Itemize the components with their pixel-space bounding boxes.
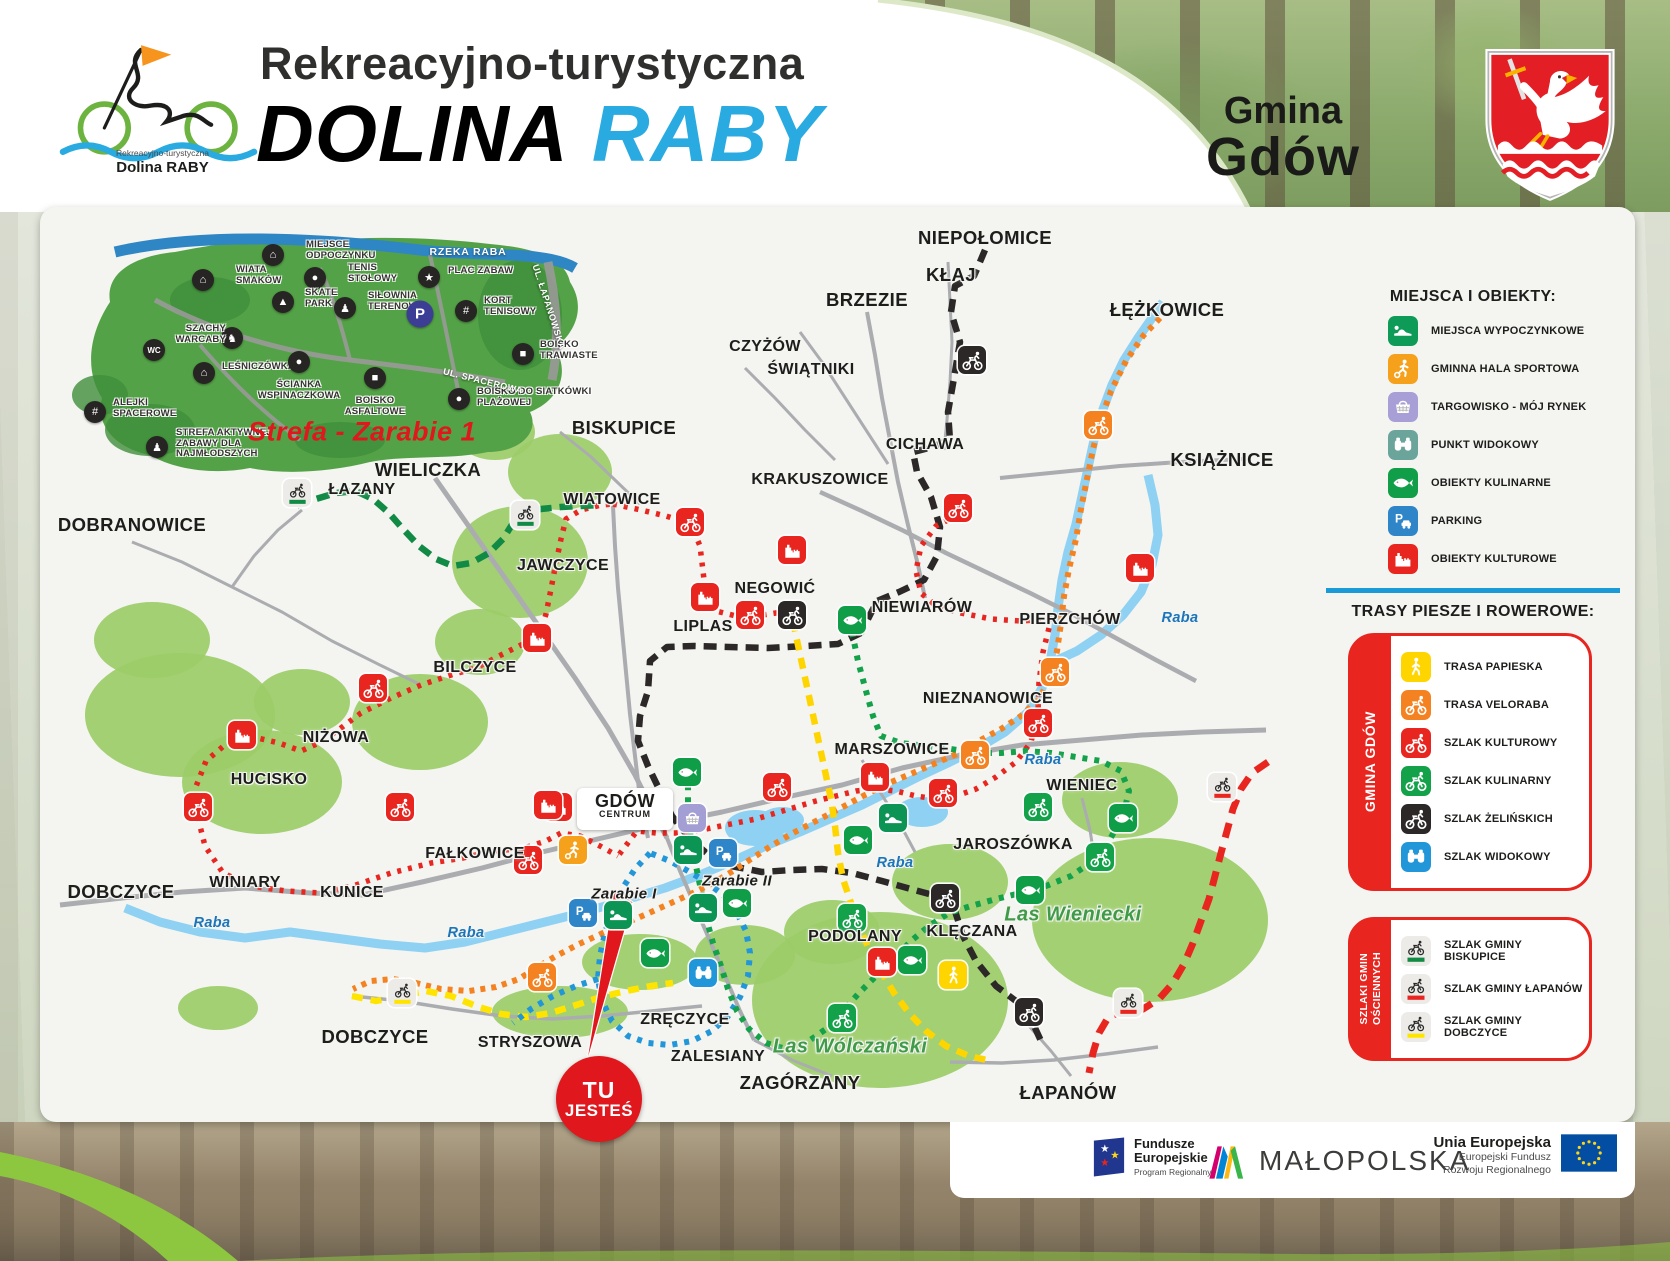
- title-dolina: DOLINA: [256, 89, 569, 178]
- legend-item-label: SZLAK KULINARNY: [1444, 775, 1552, 787]
- legend-item: SZLAK GMINY ŁAPANÓW: [1401, 974, 1583, 1004]
- header: Rekreacyjno-turystyczna Dolina RABY Rekr…: [0, 0, 1670, 207]
- logo-small-line: Rekreacyjno-turystyczna: [55, 148, 270, 159]
- binoculars-icon: [1388, 430, 1418, 460]
- legend-item-label: OBIEKTY KULTUROWE: [1431, 553, 1557, 565]
- dolina-raby-logo-text: Rekreacyjno-turystyczna Dolina RABY: [55, 148, 270, 177]
- poster: PPNIEPOŁOMICEKŁAJBRZEZIEŁĘŻKOWICECZYŻÓWŚ…: [0, 0, 1670, 1261]
- binoculars-icon: [1401, 842, 1431, 872]
- legend-objects-list: MIEJSCA WYPOCZYNKOWEGMINNA HALA SPORTOWA…: [1388, 316, 1624, 574]
- legend-neighbors-list: SZLAK GMINY BISKUPICESZLAK GMINY ŁAPANÓW…: [1401, 936, 1583, 1042]
- legend-item: SZLAK WIDOKOWY: [1401, 842, 1583, 872]
- legend-item-label: GMINNA HALA SPORTOWA: [1431, 363, 1579, 375]
- legend-item-label: TRASA PAPIESKA: [1444, 661, 1543, 673]
- malopolska-logo: MAŁOPOLSKA: [1205, 1138, 1470, 1184]
- eu-line1: Unia Europejska: [1433, 1134, 1551, 1151]
- fish-icon: [1388, 468, 1418, 498]
- legend-item-label: SZLAK GMINY ŁAPANÓW: [1444, 983, 1582, 995]
- cyclist-icon: [1401, 766, 1431, 796]
- cyclist-icon: [1401, 804, 1431, 834]
- eu-line2: Europejski Fundusz: [1459, 1151, 1551, 1163]
- legend-item-label: SZLAK KULTUROWY: [1444, 737, 1557, 749]
- legend-item-label: TARGOWISKO - MÓJ RYNEK: [1431, 401, 1586, 413]
- legend-item: SZLAK GMINY BISKUPICE: [1401, 936, 1583, 966]
- legend: MIEJSCA I OBIEKTY: MIEJSCA WYPOCZYNKOWEG…: [1322, 280, 1624, 1061]
- svg-text:★: ★: [1100, 1157, 1110, 1169]
- legend-item: TRASA PAPIESKA: [1401, 652, 1583, 682]
- poster-title-line2: DOLINA RABY: [256, 88, 823, 180]
- fe-line3: Program Regionalny: [1134, 1167, 1211, 1177]
- cyclist-icon: [1401, 690, 1431, 720]
- fe-line2: Europejskie: [1134, 1150, 1208, 1165]
- market-icon: [1388, 392, 1418, 422]
- eu-funds-text: FunduszeEuropejskie Program Regionalny: [1134, 1137, 1211, 1176]
- legend-item: SZLAK GMINY DOBCZYCE: [1401, 1012, 1583, 1042]
- eu-flag-icon: [1561, 1134, 1617, 1172]
- gmina-line2: Gdów: [1206, 130, 1360, 184]
- legend-item-label: SZLAK GMINY DOBCZYCE: [1444, 1015, 1583, 1039]
- legend-item: TARGOWISKO - MÓJ RYNEK: [1388, 392, 1624, 422]
- legend-item: MIEJSCA WYPOCZYNKOWE: [1388, 316, 1624, 346]
- gmina-gdow-tab-label: GMINA GDÓW: [1362, 711, 1378, 812]
- eu-funds-flag-icon: ★ ★ ★: [1092, 1136, 1126, 1178]
- eu-funds-logo: ★ ★ ★ FunduszeEuropejskie Program Region…: [1092, 1136, 1211, 1178]
- legend-objects-title: MIEJSCA I OBIEKTY:: [1322, 288, 1624, 306]
- eu-text: Unia Europejska Europejski FunduszRozwoj…: [1433, 1134, 1551, 1176]
- gmina-gdow-tab: GMINA GDÓW: [1349, 634, 1391, 890]
- legend-item: SZLAK KULTUROWY: [1401, 728, 1583, 758]
- gdow-coat-of-arms: [1478, 46, 1622, 206]
- malopolska-m-icon: [1205, 1138, 1249, 1184]
- legend-item-label: OBIEKTY KULINARNE: [1431, 477, 1551, 489]
- logo-small-name: Dolina RABY: [55, 159, 270, 178]
- legend-item: PPARKING: [1388, 506, 1624, 536]
- legend-item-label: SZLAK ŻELIŃSKICH: [1444, 813, 1553, 825]
- neighbor-route-icon: [1401, 936, 1431, 966]
- legend-item-label: SZLAK GMINY BISKUPICE: [1444, 939, 1583, 963]
- eu-logo: Unia Europejska Europejski FunduszRozwoj…: [1433, 1134, 1617, 1176]
- legend-item-label: SZLAK WIDOKOWY: [1444, 851, 1551, 863]
- neighbors-tab-line2: OŚCIENNYCH: [1371, 952, 1383, 1025]
- title-raby: RABY: [592, 89, 823, 178]
- svg-text:★: ★: [1100, 1143, 1110, 1155]
- legend-item-label: PARKING: [1431, 515, 1482, 527]
- legend-item: PUNKT WIDOKOWY: [1388, 430, 1624, 460]
- legend-gmina-gdow-box: GMINA GDÓW TRASA PAPIESKATRASA VELORABAS…: [1348, 633, 1592, 891]
- legend-routes-list: TRASA PAPIESKATRASA VELORABASZLAK KULTUR…: [1401, 652, 1583, 872]
- neighbor-route-icon: [1401, 974, 1431, 1004]
- gmina-line1: Gmina: [1206, 92, 1360, 130]
- sport-icon: [1388, 354, 1418, 384]
- neighbors-tab: SZLAKI GMIN OŚCIENNYCH: [1349, 918, 1391, 1060]
- rest-icon: [1388, 316, 1418, 346]
- legend-item-label: TRASA VELORABA: [1444, 699, 1549, 711]
- culture-icon: [1388, 544, 1418, 574]
- footer-logos: ★ ★ ★ FunduszeEuropejskie Program Region…: [950, 1122, 1635, 1198]
- legend-item: GMINNA HALA SPORTOWA: [1388, 354, 1624, 384]
- legend-item: TRASA VELORABA: [1401, 690, 1583, 720]
- eu-line3: Rozwoju Regionalnego: [1443, 1164, 1551, 1176]
- legend-item-label: MIEJSCA WYPOCZYNKOWE: [1431, 325, 1584, 337]
- neighbor-route-icon: [1401, 1012, 1431, 1042]
- cyclist-icon: [1401, 728, 1431, 758]
- walker-icon: [1401, 652, 1431, 682]
- svg-text:★: ★: [1110, 1149, 1120, 1161]
- neighbors-tab-line1: SZLAKI GMIN: [1358, 953, 1370, 1025]
- legend-item: OBIEKTY KULTUROWE: [1388, 544, 1624, 574]
- legend-divider: [1326, 588, 1620, 593]
- poster-title-line1: Rekreacyjno-turystyczna: [260, 38, 804, 90]
- legend-neighbors-box: SZLAKI GMIN OŚCIENNYCH SZLAK GMINY BISKU…: [1348, 917, 1592, 1061]
- legend-item: OBIEKTY KULINARNE: [1388, 468, 1624, 498]
- legend-item-label: PUNKT WIDOKOWY: [1431, 439, 1539, 451]
- municipality-name: Gmina Gdów: [1206, 92, 1360, 184]
- legend-item: SZLAK ŻELIŃSKICH: [1401, 804, 1583, 834]
- legend-routes-title: TRASY PIESZE I ROWEROWE:: [1322, 603, 1624, 621]
- legend-item: SZLAK KULINARNY: [1401, 766, 1583, 796]
- parking-icon: P: [1388, 506, 1418, 536]
